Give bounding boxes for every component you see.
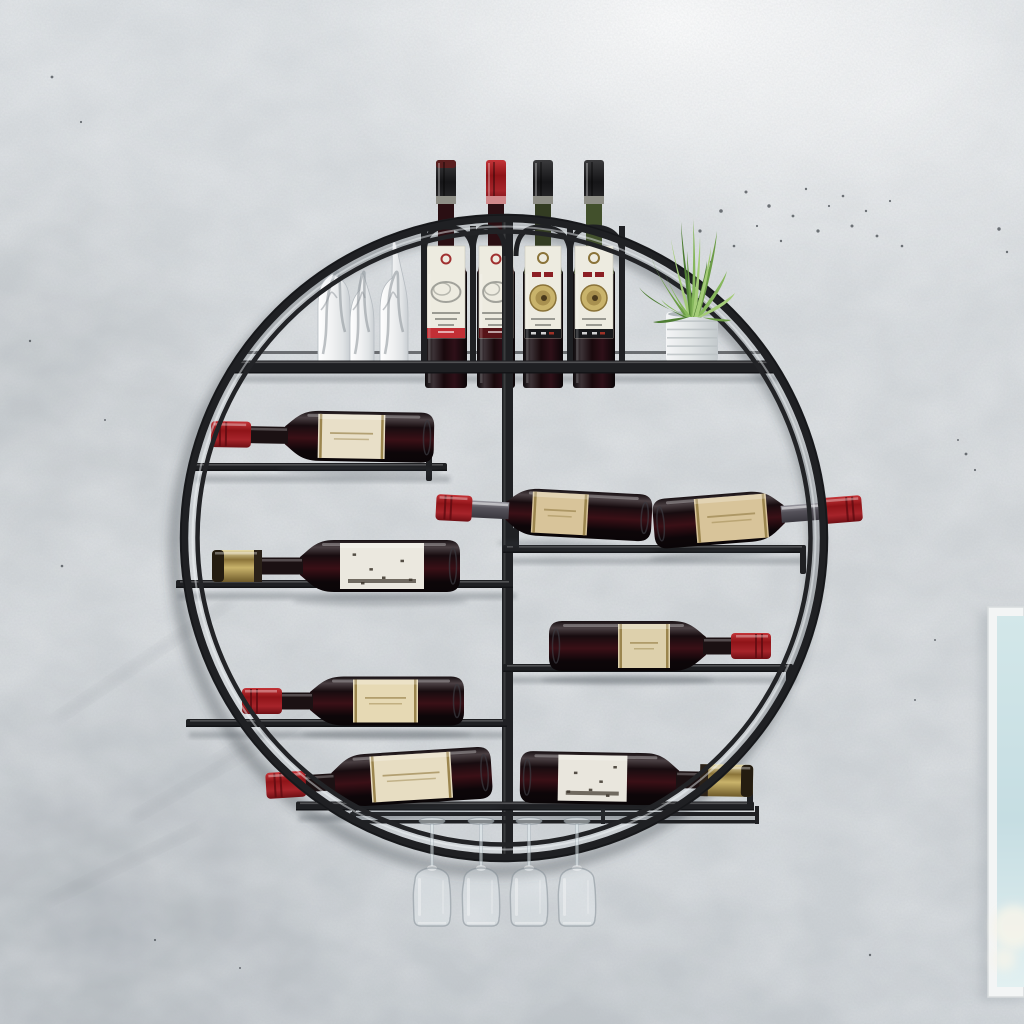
picture-frame [980,607,1024,1001]
shelf-top [232,361,776,374]
product-photo-wine-rack [0,0,1024,1024]
